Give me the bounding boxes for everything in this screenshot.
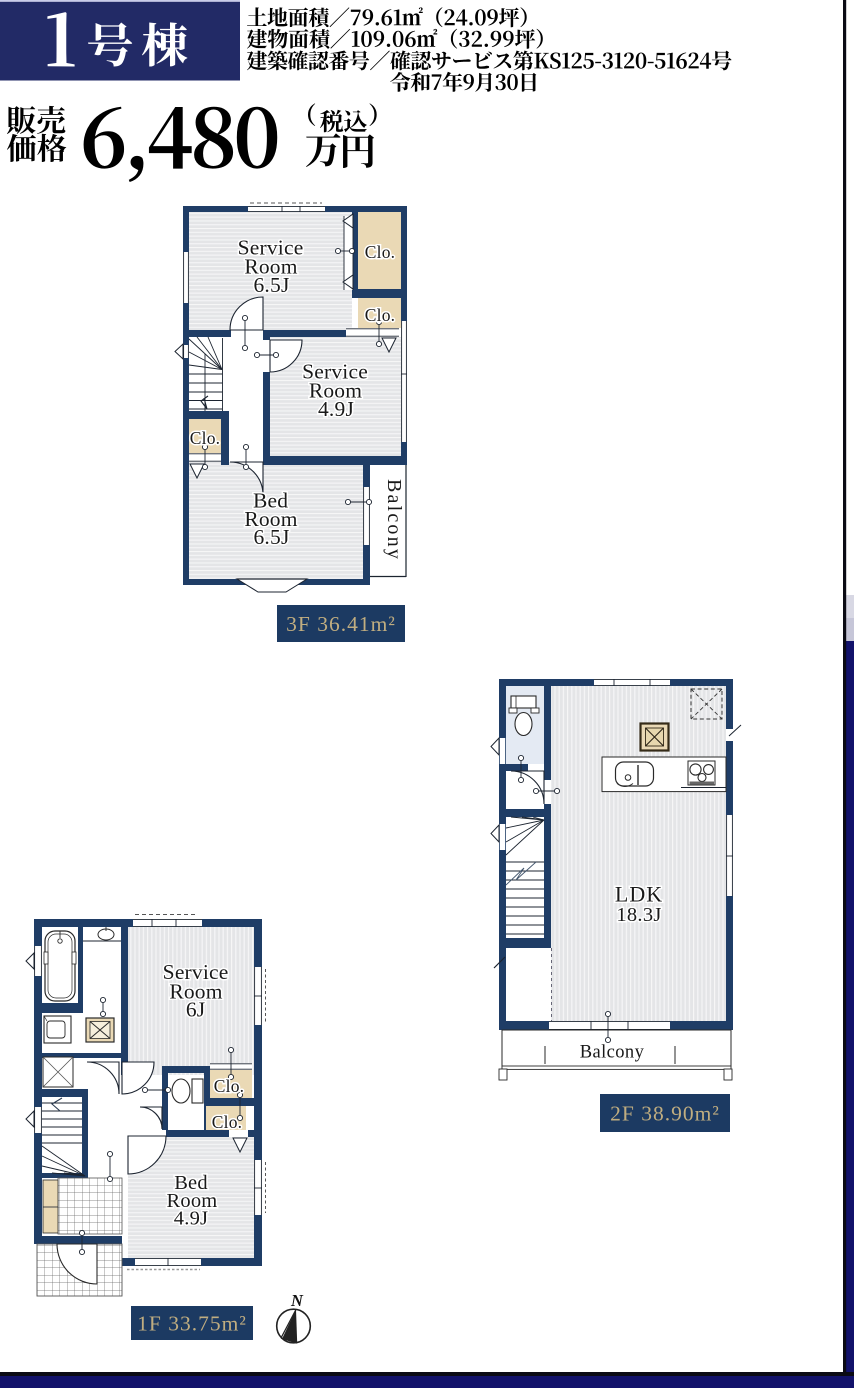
svg-text:6.5J: 6.5J [253, 525, 289, 549]
svg-text:Clo.: Clo. [214, 1076, 244, 1096]
svg-text:Clo.: Clo. [365, 242, 395, 262]
svg-text:3F 36.41m²: 3F 36.41m² [286, 612, 396, 636]
svg-text:6.5J: 6.5J [253, 273, 289, 297]
svg-text:Clo.: Clo. [365, 305, 395, 325]
svg-text:LDK: LDK [615, 882, 663, 907]
svg-text:N: N [290, 1291, 304, 1310]
svg-text:6J: 6J [186, 998, 206, 1022]
svg-text:Clo.: Clo. [212, 1112, 242, 1132]
svg-text:1F 33.75m²: 1F 33.75m² [137, 1312, 247, 1336]
svg-text:Clo.: Clo. [190, 428, 220, 448]
svg-text:4.9J: 4.9J [174, 1208, 208, 1230]
svg-text:Balcony: Balcony [580, 1043, 645, 1063]
svg-text:Balcony: Balcony [383, 479, 405, 561]
svg-text:4.9J: 4.9J [318, 397, 354, 421]
svg-text:18.3J: 18.3J [616, 904, 661, 926]
svg-text:2F 38.90m²: 2F 38.90m² [610, 1102, 720, 1126]
